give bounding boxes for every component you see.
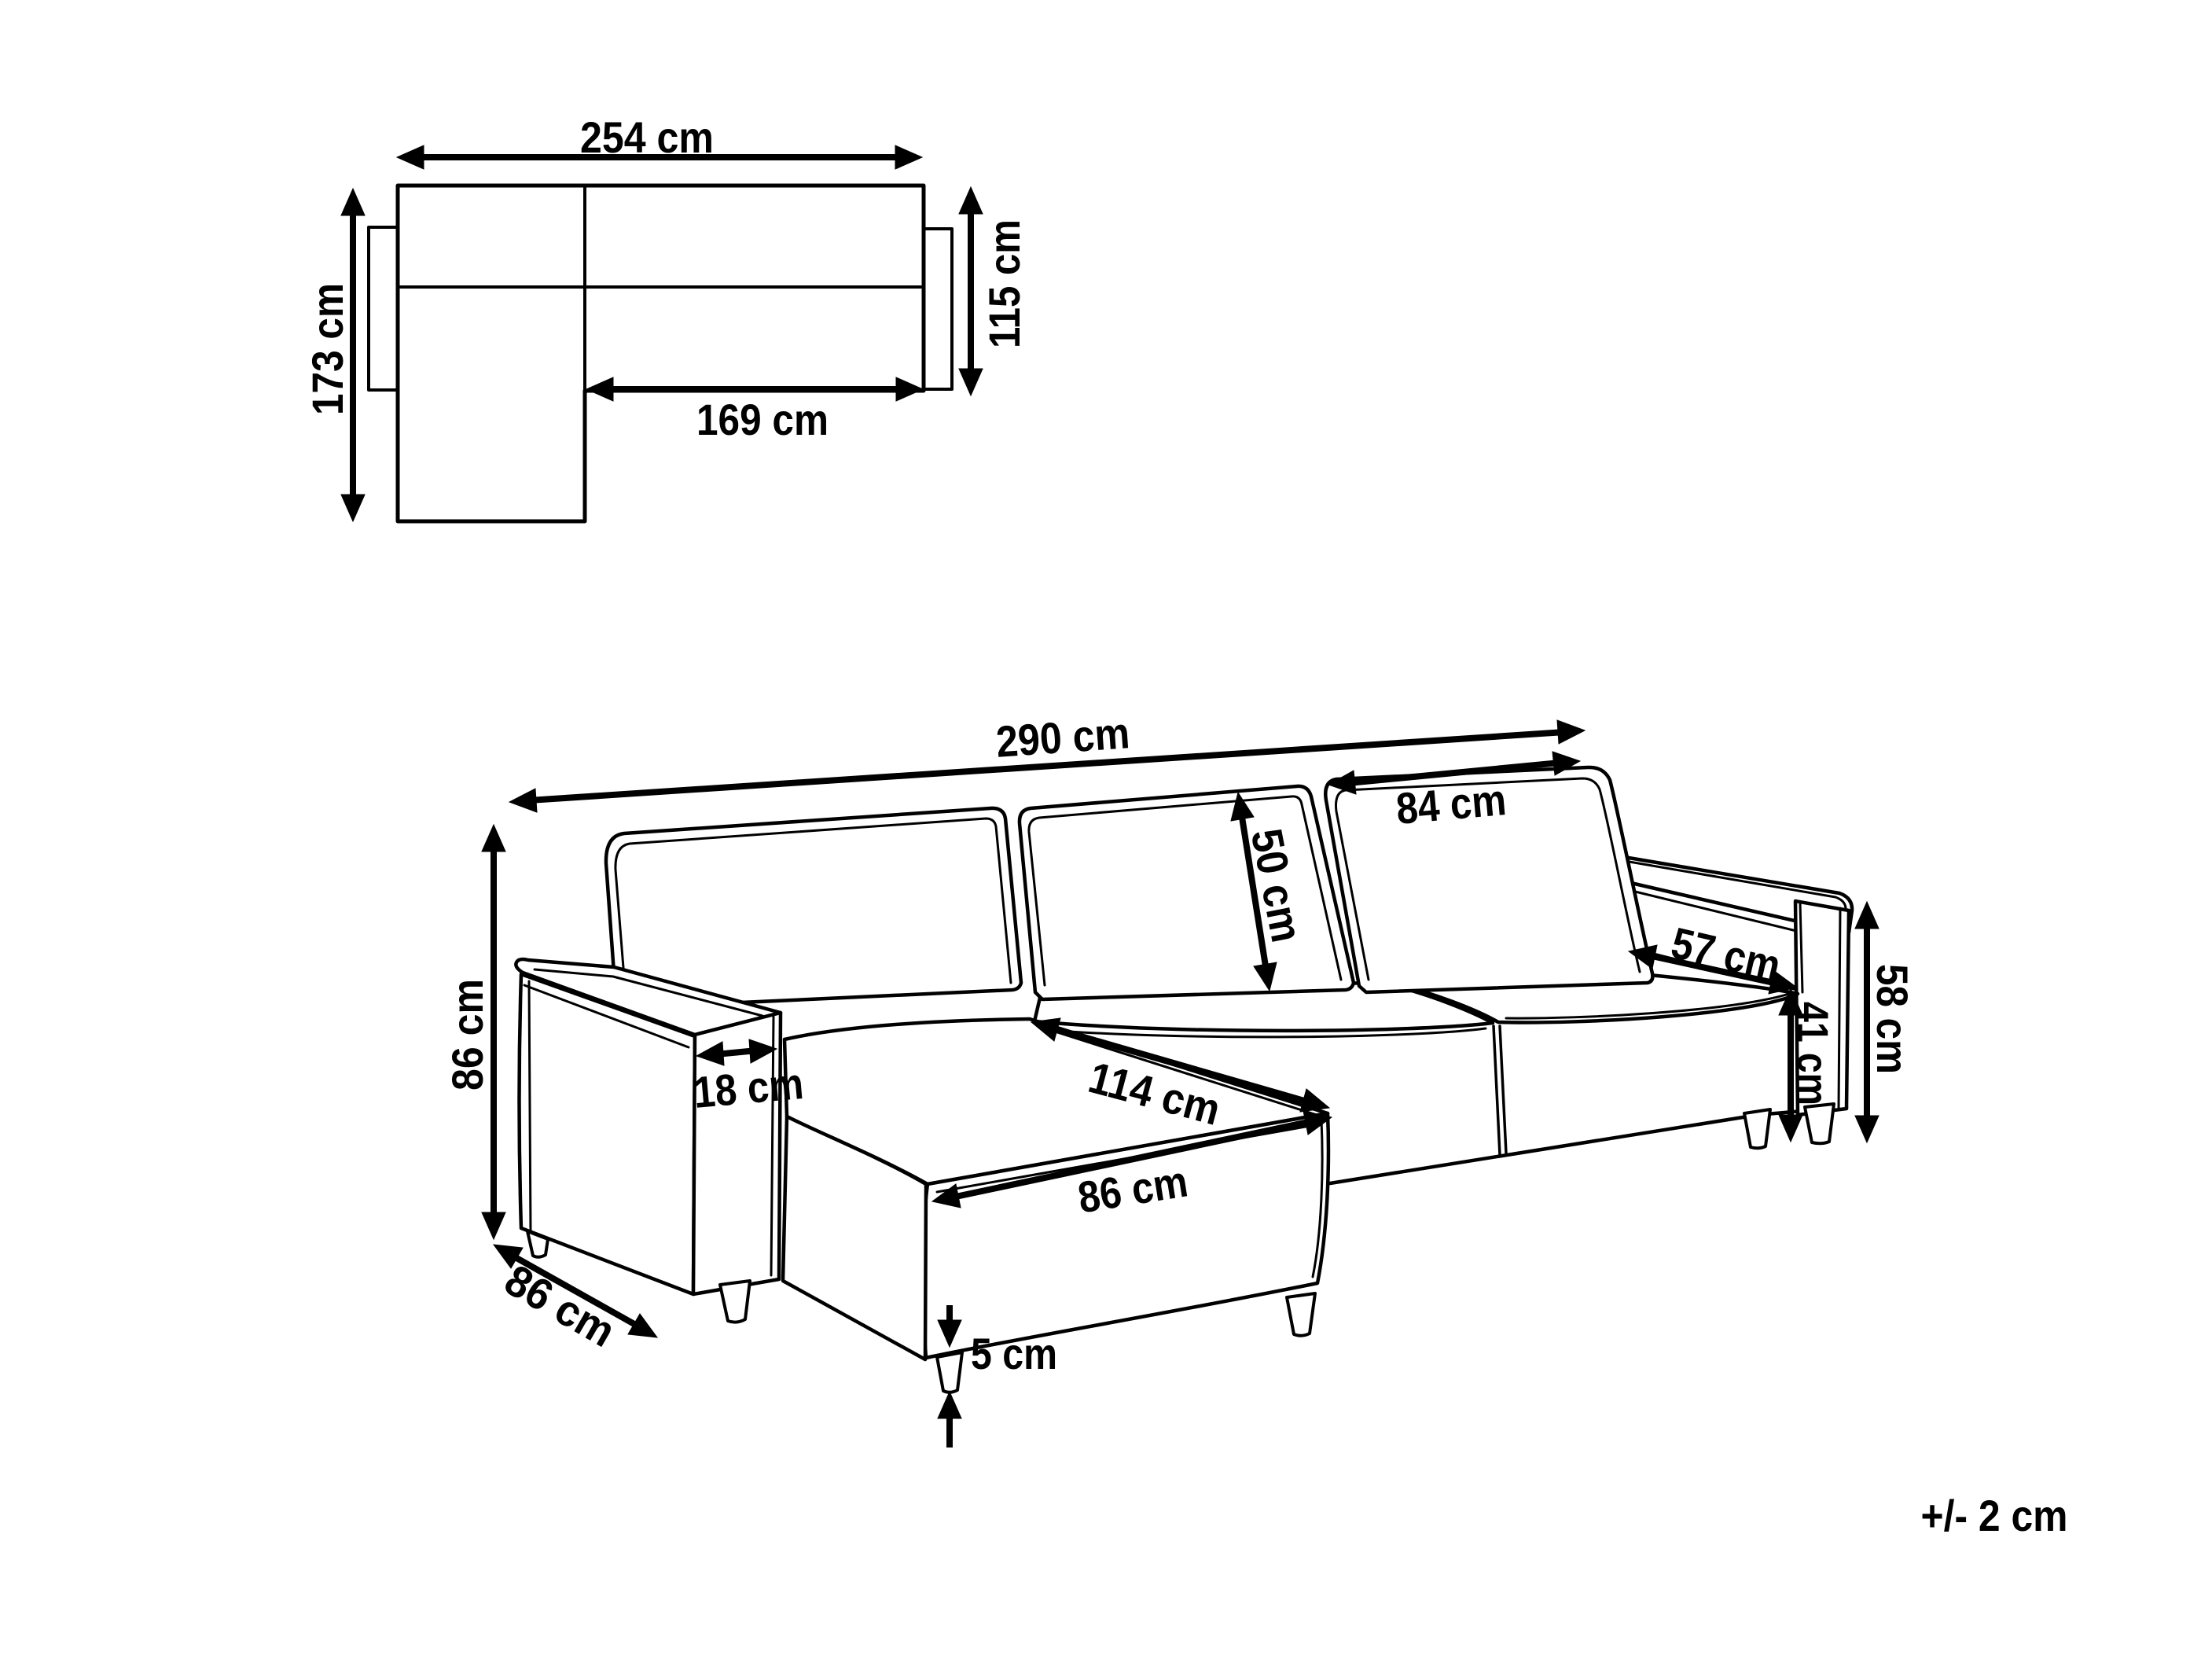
svg-text:173 cm: 173 cm bbox=[303, 283, 352, 415]
svg-text:169 cm: 169 cm bbox=[696, 395, 829, 444]
svg-text:+/- 2 cm: +/- 2 cm bbox=[1921, 1491, 2068, 1540]
svg-text:84 cm: 84 cm bbox=[1394, 774, 1508, 833]
svg-text:254 cm: 254 cm bbox=[580, 112, 714, 162]
svg-text:41 cm: 41 cm bbox=[1788, 1002, 1838, 1105]
svg-text:86 cm: 86 cm bbox=[443, 979, 492, 1091]
svg-text:18 cm: 18 cm bbox=[692, 1058, 806, 1117]
svg-text:290 cm: 290 cm bbox=[994, 708, 1131, 767]
svg-text:115 cm: 115 cm bbox=[979, 219, 1029, 348]
svg-text:5 cm: 5 cm bbox=[971, 1329, 1057, 1378]
svg-text:58 cm: 58 cm bbox=[1868, 964, 1917, 1074]
